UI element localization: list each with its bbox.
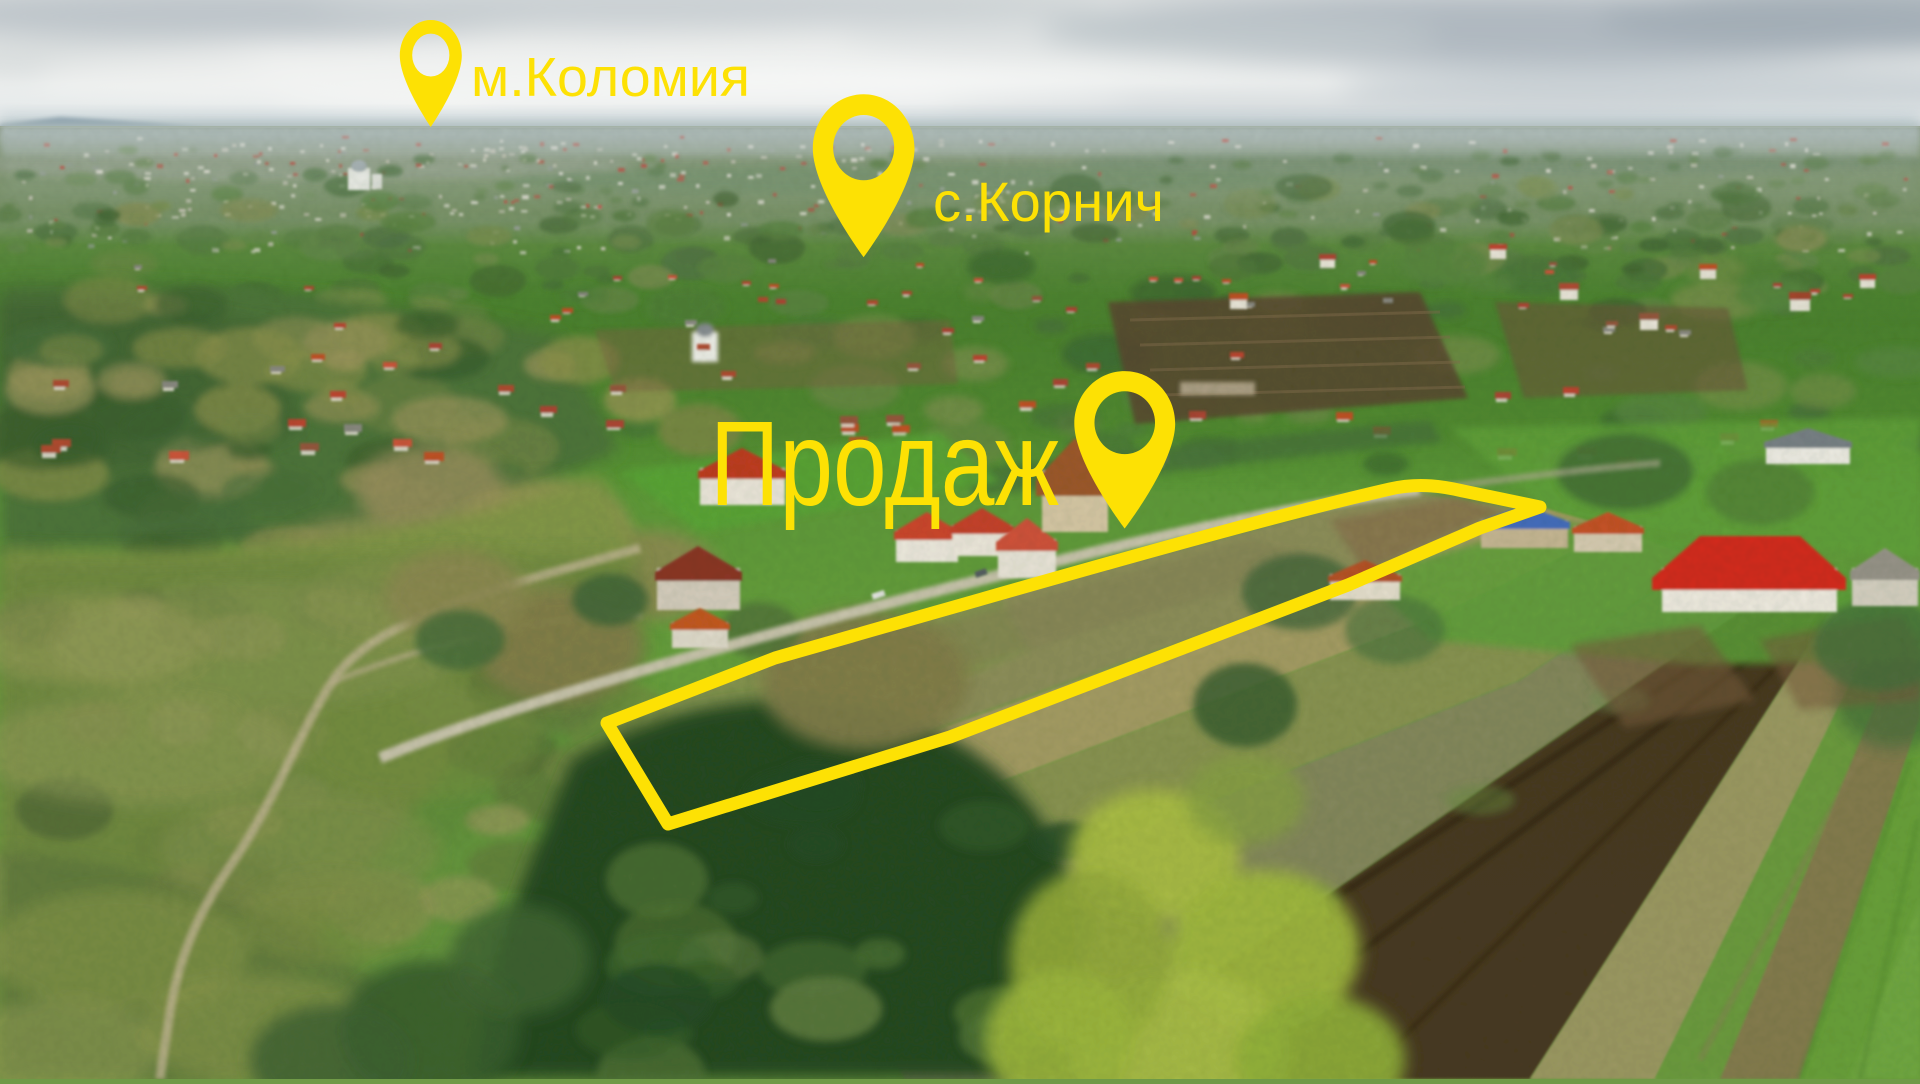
svg-text:м.Коломия: м.Коломия xyxy=(471,46,750,108)
svg-text:с.Корнич: с.Корнич xyxy=(933,170,1164,233)
svg-text:Продаж: Продаж xyxy=(710,395,1059,531)
